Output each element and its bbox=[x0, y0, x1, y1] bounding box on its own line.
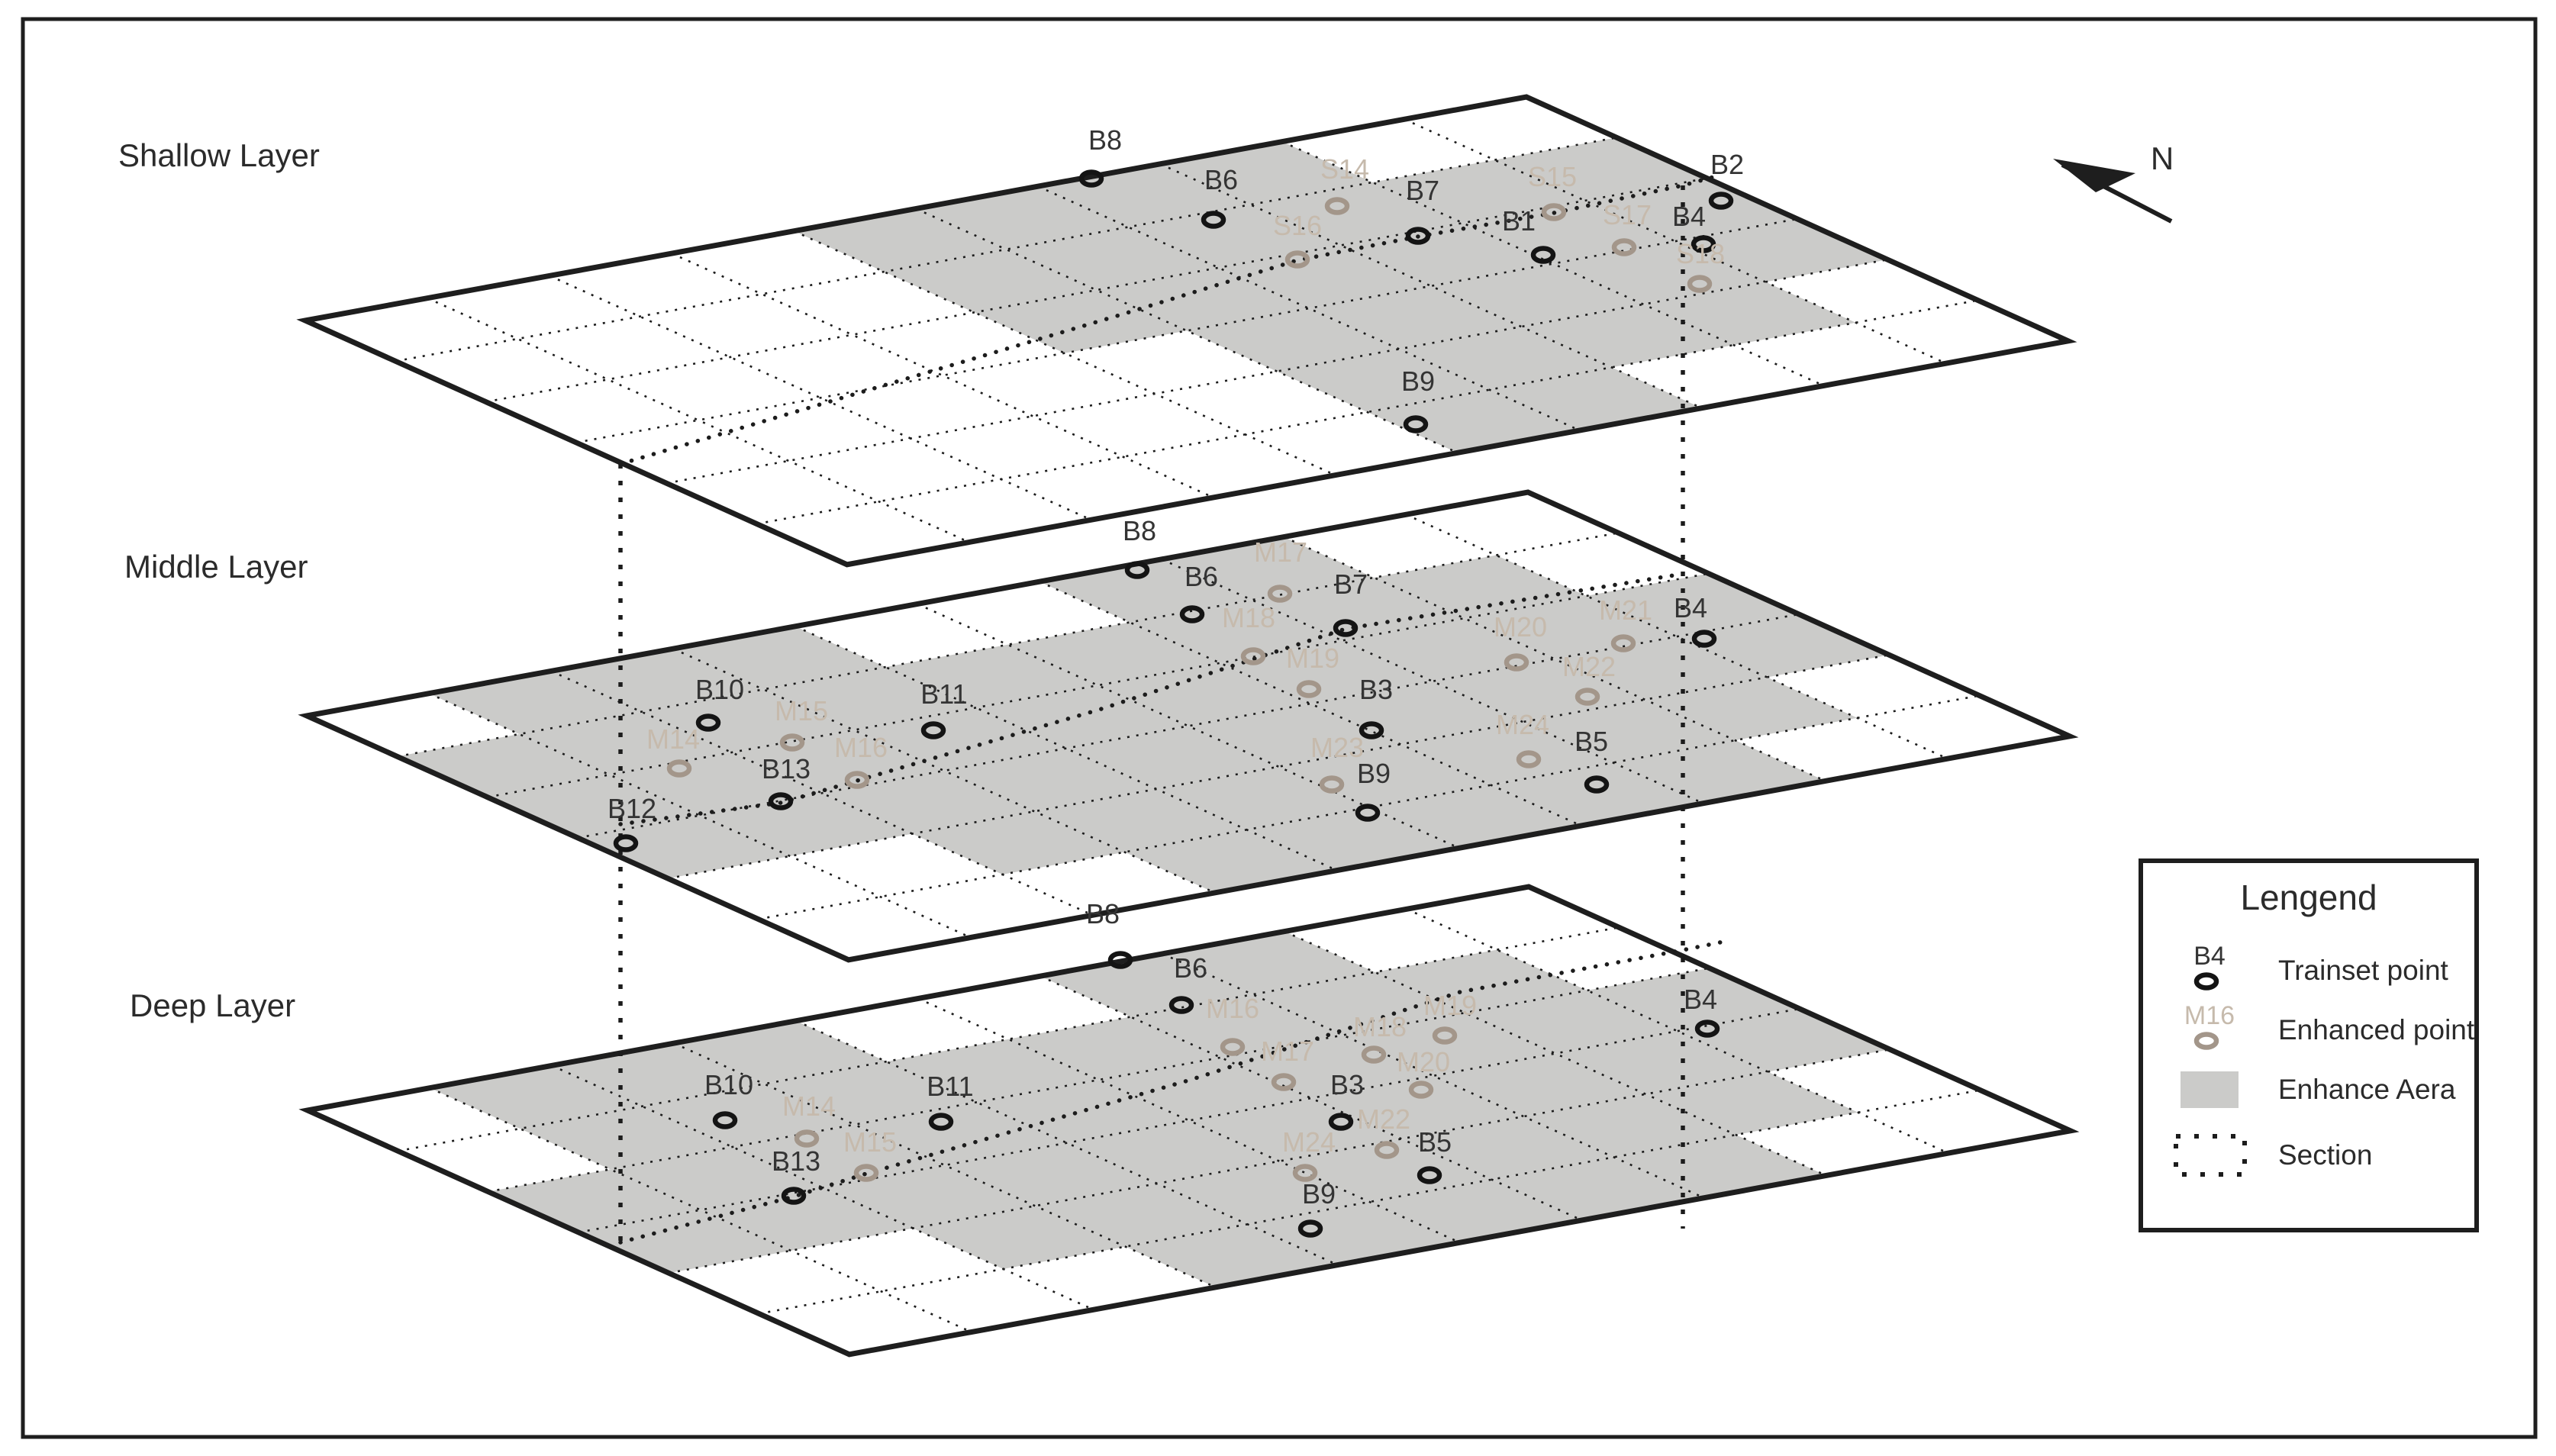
point-label-middle-M24: M24 bbox=[1496, 709, 1549, 740]
legend-item-text: Section bbox=[2278, 1139, 2372, 1171]
point-label-shallow-B4: B4 bbox=[1672, 201, 1706, 232]
legend-item-text: Enhanced point bbox=[2278, 1014, 2475, 1045]
point-label-middle-B9: B9 bbox=[1357, 758, 1391, 789]
legend-symbol-label-trainset: B4 bbox=[2193, 942, 2226, 971]
point-label-deep-M14: M14 bbox=[782, 1090, 836, 1122]
deep-layer-title: Deep Layer bbox=[130, 987, 295, 1023]
point-label-shallow-S16: S16 bbox=[1273, 210, 1322, 241]
point-label-middle-M19: M19 bbox=[1286, 643, 1339, 674]
point-label-middle-B7: B7 bbox=[1334, 569, 1368, 600]
point-label-middle-B11: B11 bbox=[920, 678, 967, 710]
point-label-middle-B5: B5 bbox=[1575, 726, 1608, 757]
point-label-middle-B8: B8 bbox=[1123, 515, 1156, 546]
point-label-middle-M20: M20 bbox=[1494, 611, 1547, 643]
point-label-deep-B6: B6 bbox=[1174, 952, 1207, 984]
point-label-middle-B13: B13 bbox=[762, 753, 811, 784]
point-label-shallow-S14: S14 bbox=[1320, 153, 1369, 185]
point-label-deep-B3: B3 bbox=[1330, 1069, 1364, 1100]
point-label-deep-M22: M22 bbox=[1357, 1103, 1410, 1135]
point-label-middle-B6: B6 bbox=[1185, 561, 1218, 592]
point-label-deep-M16: M16 bbox=[1206, 993, 1259, 1024]
point-label-middle-B12: B12 bbox=[608, 793, 656, 824]
point-label-deep-B10: B10 bbox=[704, 1069, 753, 1100]
figure-container: B8B6S14B7S16S15B1S17B2B4S18B9Shallow Lay… bbox=[0, 0, 2556, 1456]
point-label-shallow-B9: B9 bbox=[1401, 366, 1435, 397]
legend-title: Lengend bbox=[2240, 878, 2377, 917]
point-label-deep-B11: B11 bbox=[927, 1071, 973, 1102]
point-label-shallow-B1: B1 bbox=[1502, 205, 1536, 237]
layered-grid-diagram: B8B6S14B7S16S15B1S17B2B4S18B9Shallow Lay… bbox=[0, 0, 2556, 1456]
point-label-shallow-S17: S17 bbox=[1603, 199, 1652, 230]
point-label-middle-M15: M15 bbox=[775, 695, 828, 726]
point-label-shallow-S18: S18 bbox=[1676, 238, 1725, 269]
point-label-middle-M21: M21 bbox=[1599, 594, 1652, 626]
point-label-shallow-B6: B6 bbox=[1204, 164, 1238, 195]
point-label-deep-B13: B13 bbox=[772, 1145, 820, 1177]
point-label-middle-M14: M14 bbox=[646, 723, 700, 755]
point-label-shallow-S15: S15 bbox=[1528, 161, 1577, 192]
point-label-deep-M18: M18 bbox=[1353, 1011, 1407, 1042]
point-label-deep-B4: B4 bbox=[1684, 984, 1717, 1015]
legend-item-text: Trainset point bbox=[2278, 955, 2449, 986]
point-label-deep-B8: B8 bbox=[1086, 898, 1120, 929]
middle-layer-title: Middle Layer bbox=[124, 549, 308, 585]
point-label-middle-M18: M18 bbox=[1222, 602, 1275, 633]
point-label-middle-B3: B3 bbox=[1359, 674, 1393, 705]
point-label-shallow-B2: B2 bbox=[1710, 149, 1744, 180]
point-label-deep-M17: M17 bbox=[1261, 1036, 1314, 1067]
legend-enhance-area-swatch bbox=[2180, 1071, 2239, 1108]
point-label-deep-M20: M20 bbox=[1397, 1046, 1450, 1078]
point-label-middle-B10: B10 bbox=[695, 674, 744, 705]
point-label-deep-M15: M15 bbox=[843, 1126, 897, 1158]
point-label-deep-M19: M19 bbox=[1423, 990, 1477, 1021]
shallow-layer-title: Shallow Layer bbox=[118, 137, 320, 173]
point-label-middle-M16: M16 bbox=[834, 732, 888, 763]
point-label-deep-M24: M24 bbox=[1282, 1126, 1336, 1158]
point-label-middle-B4: B4 bbox=[1674, 592, 1707, 623]
point-label-shallow-B8: B8 bbox=[1088, 124, 1122, 156]
point-label-middle-M22: M22 bbox=[1562, 651, 1616, 682]
legend-symbol-label-enhanced: M16 bbox=[2184, 1001, 2235, 1030]
legend-item-text: Enhance Aera bbox=[2278, 1074, 2456, 1105]
point-label-shallow-B7: B7 bbox=[1406, 175, 1439, 206]
point-label-middle-M17: M17 bbox=[1254, 536, 1307, 568]
point-label-deep-B9: B9 bbox=[1302, 1178, 1336, 1210]
north-label: N bbox=[2151, 140, 2174, 176]
legend: LengendB4Trainset pointM16Enhanced point… bbox=[2141, 861, 2477, 1230]
point-label-deep-B5: B5 bbox=[1418, 1126, 1452, 1158]
point-label-middle-M23: M23 bbox=[1310, 732, 1364, 763]
